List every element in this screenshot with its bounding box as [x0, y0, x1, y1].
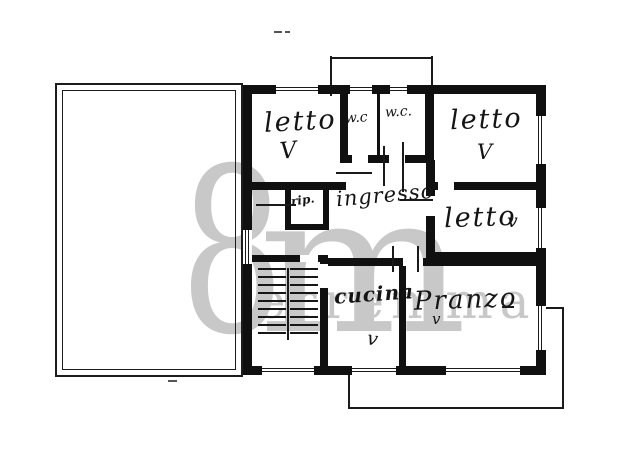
stair-center-rail [287, 268, 289, 340]
window-bottom-dining [446, 366, 520, 375]
mark-bedroom-mid-right: v [507, 212, 518, 231]
staircase [258, 268, 320, 364]
window-right-letto3 [536, 208, 546, 248]
balcony-bottom-line [348, 407, 564, 409]
label-wc-small: w.c [345, 110, 369, 126]
door-tick-dining-a [392, 246, 394, 272]
window-top-wc1 [350, 85, 372, 94]
door-gap-dining [403, 258, 423, 266]
window-top-letto1 [276, 85, 318, 94]
label-bedroom-mid-right: letto [444, 203, 517, 233]
window-bottom-stair [262, 366, 314, 375]
label-kitchen: cucina [333, 281, 414, 307]
window-top-wc2 [390, 85, 407, 94]
balcony-right-line [562, 307, 564, 409]
balcony-left-line [348, 375, 350, 409]
wall-wc-letto2 [425, 85, 434, 163]
label-storage-closet: rip. [290, 192, 315, 207]
top-box-top-line [330, 57, 433, 59]
stair-flight-right [290, 268, 318, 338]
label-bedroom-top-left: letto [263, 106, 337, 137]
scan-dash-top-a [274, 31, 282, 33]
mark-bedroom-top-right: V [477, 142, 492, 163]
wall-wc-divider [377, 94, 380, 158]
label-dining-room: Pranzo [414, 285, 518, 315]
wall-letto3-bottom [426, 252, 546, 266]
door-gap-stair-top [300, 255, 318, 262]
door-gap-letto2 [438, 182, 454, 190]
wall-closet-right [323, 190, 329, 230]
label-wc-large: w.c. [385, 104, 413, 119]
mark-bedroom-top-left: V [279, 139, 298, 164]
door-gap-stair-side [320, 264, 328, 288]
label-bedroom-top-right: letto [450, 105, 523, 135]
door-tick-closet [256, 204, 296, 206]
door-tick-dining-b [417, 246, 419, 272]
window-right-dining [536, 306, 546, 350]
entry-door-left [243, 230, 252, 264]
door-tick-wc1 [383, 146, 385, 186]
scan-dash-top-b [285, 31, 290, 33]
floor-plan: 8 m erremma [0, 0, 626, 459]
window-bottom-kitchen [352, 366, 396, 375]
terrace-inner-outline [62, 90, 236, 370]
mark-dining-room: v [432, 312, 440, 327]
balcony-top-line [546, 307, 564, 309]
wall-letto1-bottom [243, 182, 346, 190]
scan-dash-bottom [168, 380, 177, 382]
door-tick-letto1 [336, 172, 372, 174]
window-right-letto2 [536, 116, 546, 164]
stair-flight-left [258, 268, 286, 338]
door-gap-wc1 [352, 155, 368, 163]
